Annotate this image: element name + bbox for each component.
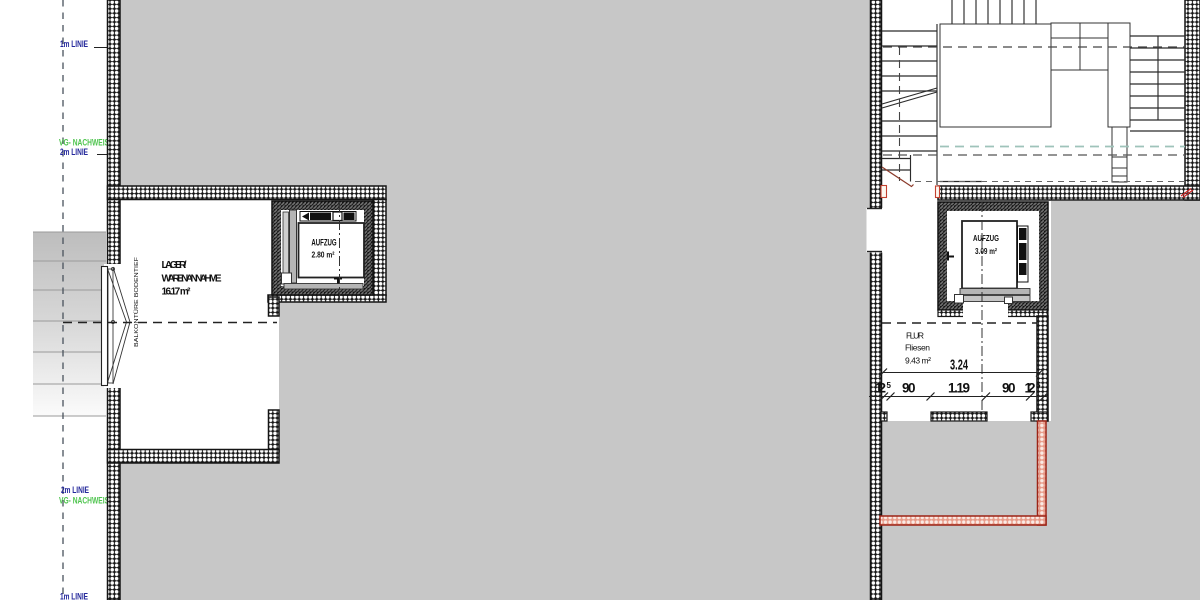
svg-text:1m LINIE: 1m LINIE xyxy=(60,592,88,600)
svg-text:LAGER/: LAGER/ xyxy=(162,260,188,271)
svg-text:12: 12 xyxy=(1025,381,1036,396)
svg-text:Fliesen: Fliesen xyxy=(905,343,930,353)
svg-text:90: 90 xyxy=(1002,381,1016,396)
svg-text:16.17 m²: 16.17 m² xyxy=(162,287,192,298)
svg-text:5: 5 xyxy=(1036,381,1041,390)
svg-text:90: 90 xyxy=(902,381,916,396)
svg-text:1m LINIE: 1m LINIE xyxy=(60,39,88,49)
svg-text:2.80 m²: 2.80 m² xyxy=(312,250,335,260)
svg-text:BALKONTÜRE BODENTIEF: BALKONTÜRE BODENTIEF xyxy=(133,256,140,347)
svg-text:WARENANNAHME: WARENANNAHME xyxy=(162,274,222,285)
svg-text:12: 12 xyxy=(875,381,886,396)
svg-text:2m LINIE: 2m LINIE xyxy=(60,147,88,157)
svg-text:AUFZUG: AUFZUG xyxy=(973,233,999,243)
svg-text:1.19: 1.19 xyxy=(948,381,970,396)
svg-text:2m LINIE: 2m LINIE xyxy=(61,485,89,495)
svg-text:3.09 m²: 3.09 m² xyxy=(975,247,997,256)
svg-text:9.43 m²: 9.43 m² xyxy=(905,356,931,366)
svg-text:3.24: 3.24 xyxy=(950,357,968,374)
svg-text:VG- NACHWEIS: VG- NACHWEIS xyxy=(59,496,109,506)
svg-text:5: 5 xyxy=(887,381,892,390)
svg-text:VG- NACHWEIS: VG- NACHWEIS xyxy=(59,138,109,148)
svg-text:FLUR: FLUR xyxy=(906,331,924,341)
svg-text:AUFZUG: AUFZUG xyxy=(311,238,336,248)
